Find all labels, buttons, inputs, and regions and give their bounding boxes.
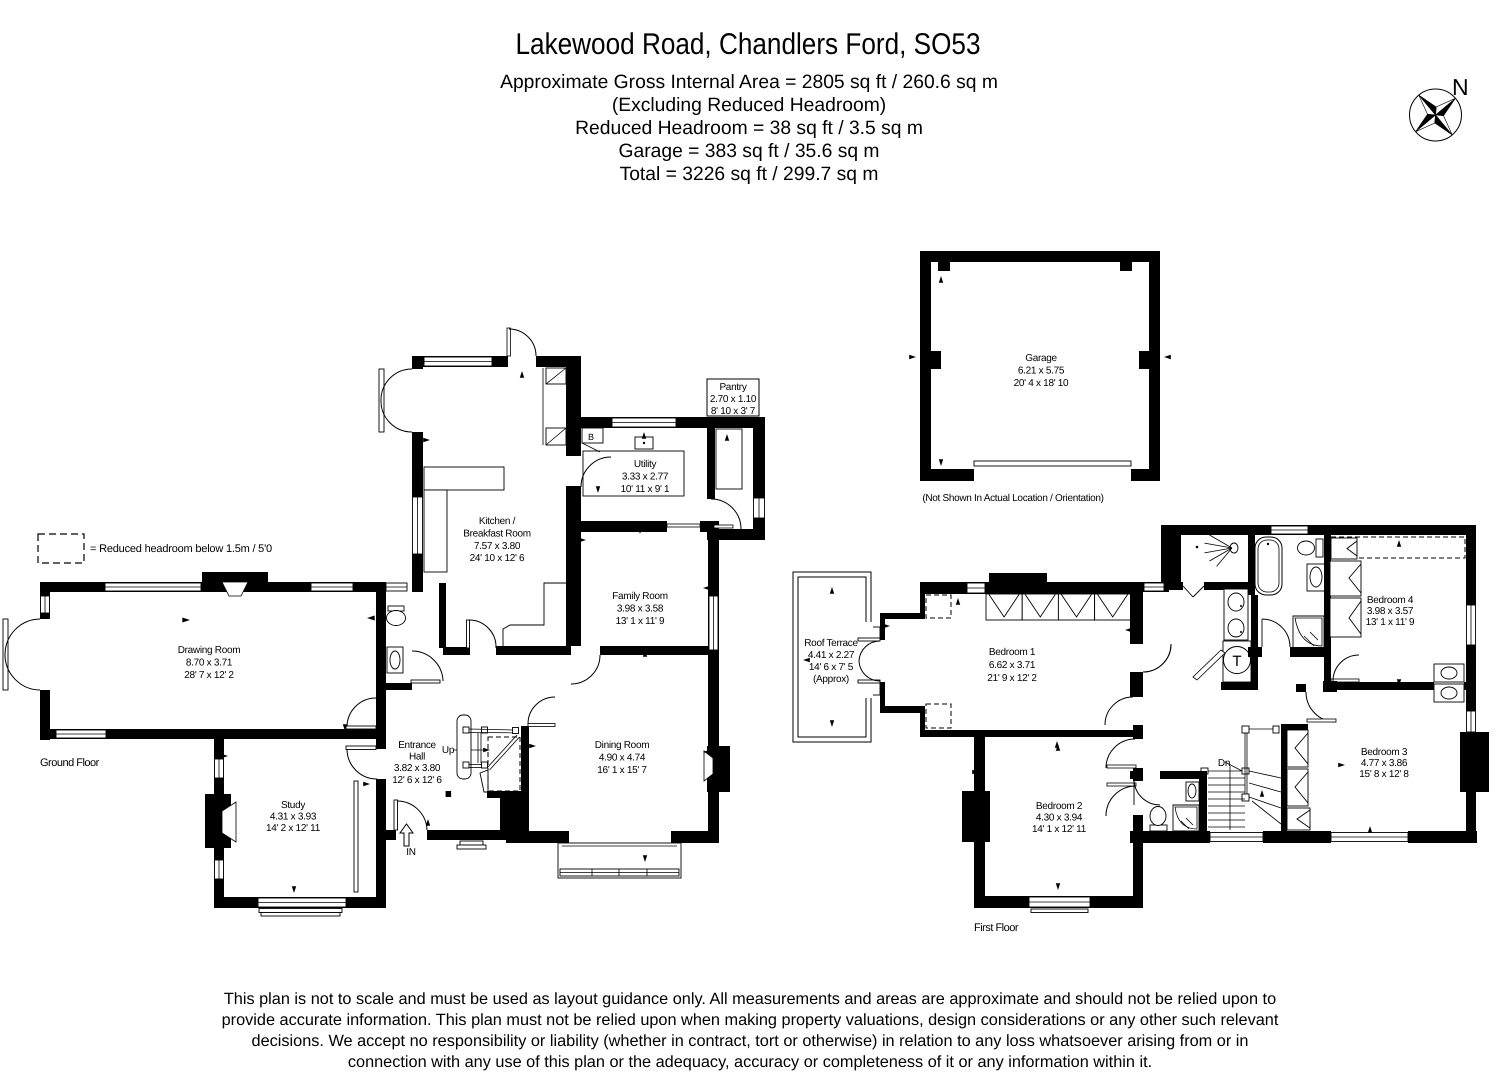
svg-text:Drawing Room: Drawing Room xyxy=(178,645,241,656)
svg-text:28' 7 x 12' 2: 28' 7 x 12' 2 xyxy=(184,670,234,681)
svg-text:4.41 x 2.27: 4.41 x 2.27 xyxy=(808,650,855,661)
svg-text:Breakfast Room: Breakfast Room xyxy=(463,528,531,539)
svg-text:14' 6 x 7' 5: 14' 6 x 7' 5 xyxy=(809,662,854,673)
svg-text:Bedroom 1: Bedroom 1 xyxy=(989,647,1036,658)
svg-text:(Not Shown In Actual Location: (Not Shown In Actual Location / Orientat… xyxy=(922,493,1103,504)
svg-text:16' 1 x 15' 7: 16' 1 x 15' 7 xyxy=(597,765,647,776)
svg-text:Pantry: Pantry xyxy=(719,382,746,393)
svg-text:3.82 x 3.80: 3.82 x 3.80 xyxy=(394,763,441,774)
svg-text:10' 11 x 9' 1: 10' 11 x 9' 1 xyxy=(621,484,670,495)
svg-text:6.62 x 3.71: 6.62 x 3.71 xyxy=(989,660,1036,671)
svg-text:4.30 x 3.94: 4.30 x 3.94 xyxy=(1036,812,1083,823)
svg-text:14' 2 x 12' 11: 14' 2 x 12' 11 xyxy=(266,823,321,834)
svg-text:7.57 x 3.80: 7.57 x 3.80 xyxy=(474,541,521,552)
svg-text:Bedroom 3: Bedroom 3 xyxy=(1361,747,1408,758)
svg-text:Garage: Garage xyxy=(1025,353,1057,364)
svg-text:8' 10 x 3' 7: 8' 10 x 3' 7 xyxy=(711,406,756,417)
svg-text:Garage = 383 sq ft / 35.6 sq m: Garage = 383 sq ft / 35.6 sq m xyxy=(619,141,880,162)
svg-text:B: B xyxy=(588,432,594,442)
svg-text:Dining Room: Dining Room xyxy=(595,740,650,751)
svg-text:connection with any use of thi: connection with any use of this plan or … xyxy=(348,1053,1152,1071)
svg-text:13' 1 x 11' 9: 13' 1 x 11' 9 xyxy=(616,616,665,627)
svg-text:3.98 x 3.58: 3.98 x 3.58 xyxy=(617,603,664,614)
svg-text:T: T xyxy=(1232,653,1241,670)
svg-text:20' 4 x 18' 10: 20' 4 x 18' 10 xyxy=(1014,378,1069,389)
svg-text:6.21 x 5.75: 6.21 x 5.75 xyxy=(1018,365,1065,376)
svg-text:This plan is not to scale and: This plan is not to scale and must be us… xyxy=(224,990,1276,1008)
svg-text:8.70 x 3.71: 8.70 x 3.71 xyxy=(186,657,233,668)
svg-text:Bedroom 4: Bedroom 4 xyxy=(1367,595,1414,606)
svg-text:IN: IN xyxy=(406,847,415,858)
svg-text:Entrance: Entrance xyxy=(398,740,436,751)
svg-text:(Approx): (Approx) xyxy=(813,674,849,685)
svg-text:First Floor: First Floor xyxy=(974,922,1019,934)
svg-text:decisions. We accept no respon: decisions. We accept no responsibility o… xyxy=(252,1032,1249,1050)
svg-text:24' 10 x 12' 6: 24' 10 x 12' 6 xyxy=(470,553,525,564)
svg-text:Reduced Headroom = 38 sq ft /: Reduced Headroom = 38 sq ft / 3.5 sq m xyxy=(575,118,923,139)
svg-text:(Excluding Reduced Headroom): (Excluding Reduced Headroom) xyxy=(612,95,886,116)
svg-text:Ground Floor: Ground Floor xyxy=(40,757,100,769)
svg-text:3.33 x 2.77: 3.33 x 2.77 xyxy=(622,471,669,482)
svg-text:provide accurate information.: provide accurate information. This plan … xyxy=(222,1011,1279,1029)
svg-text:Bedroom 2: Bedroom 2 xyxy=(1036,801,1083,812)
svg-text:Family Room: Family Room xyxy=(612,591,668,602)
svg-text:13' 1 x 11' 9: 13' 1 x 11' 9 xyxy=(1366,617,1415,628)
svg-text:Lakewood Road, Chandlers Ford,: Lakewood Road, Chandlers Ford, SO53 xyxy=(516,28,981,61)
svg-text:Roof Terrace: Roof Terrace xyxy=(804,638,858,649)
svg-text:3.98 x 3.57: 3.98 x 3.57 xyxy=(1367,606,1414,617)
svg-text:Up: Up xyxy=(442,745,455,756)
svg-text:= Reduced headroom below 1.5m: = Reduced headroom below 1.5m / 5'0 xyxy=(90,543,272,555)
svg-text:12' 6 x 12' 6: 12' 6 x 12' 6 xyxy=(392,775,442,786)
svg-text:Study: Study xyxy=(281,800,305,811)
svg-text:15' 8 x 12' 8: 15' 8 x 12' 8 xyxy=(1359,769,1409,780)
svg-text:2.70 x 1.10: 2.70 x 1.10 xyxy=(710,394,757,405)
svg-text:4.31 x 3.93: 4.31 x 3.93 xyxy=(270,812,317,823)
svg-text:Hall: Hall xyxy=(409,752,425,763)
svg-text:Approximate Gross Internal Are: Approximate Gross Internal Area = 2805 s… xyxy=(500,72,998,93)
svg-text:Kitchen /: Kitchen / xyxy=(479,516,516,527)
svg-text:21' 9 x 12' 2: 21' 9 x 12' 2 xyxy=(987,673,1037,684)
svg-text:Utility: Utility xyxy=(634,459,657,470)
svg-text:Total = 3226 sq ft / 299.7 sq: Total = 3226 sq ft / 299.7 sq m xyxy=(620,164,879,185)
svg-text:4.77 x 3.86: 4.77 x 3.86 xyxy=(1361,758,1408,769)
svg-text:N: N xyxy=(1452,74,1469,100)
svg-text:4.90 x 4.74: 4.90 x 4.74 xyxy=(599,752,646,763)
svg-text:14' 1 x 12' 11: 14' 1 x 12' 11 xyxy=(1032,824,1087,835)
